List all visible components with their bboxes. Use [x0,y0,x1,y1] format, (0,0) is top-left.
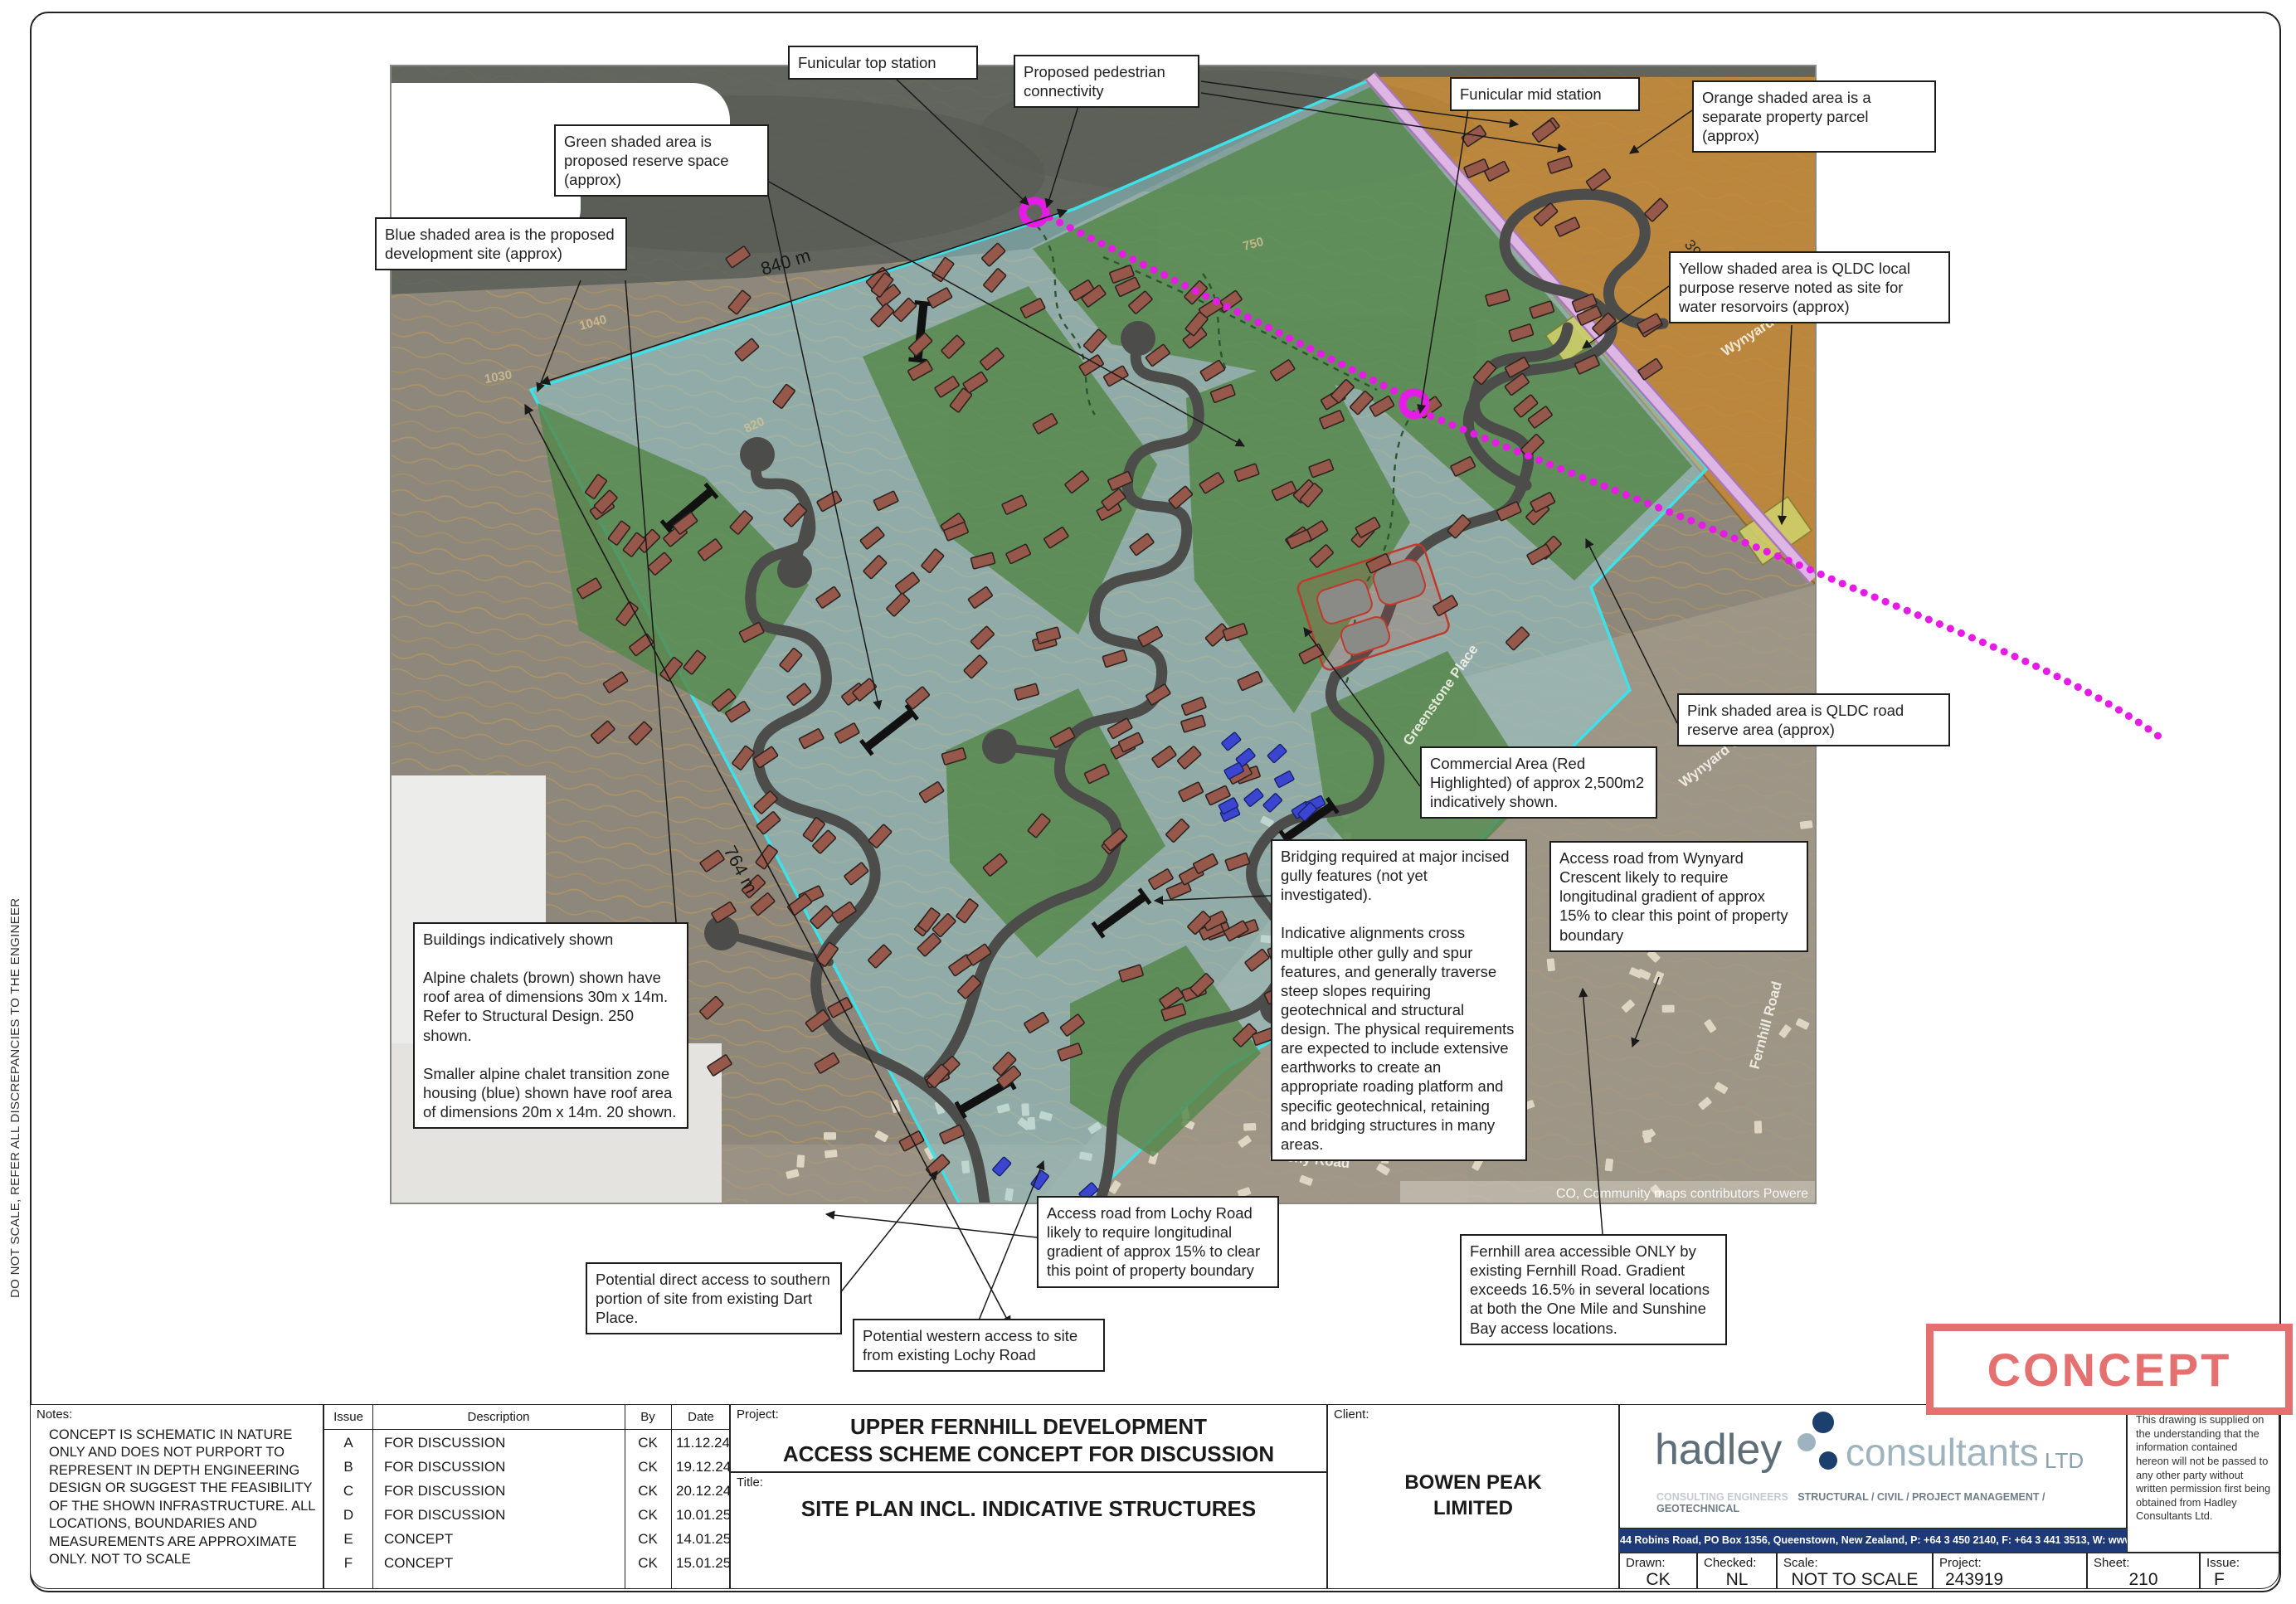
logo-ltd: LTD [2045,1448,2084,1474]
logo-dot-navy-1 [1812,1412,1834,1433]
notes-text: CONCEPT IS SCHEMATIC IN NATURE ONLY AND … [49,1427,316,1569]
col-issue: Issue [324,1410,372,1424]
client-label: Client: [1334,1407,1369,1422]
consultant-logo-panel: hadley consultants LTD CONSULTING ENGINE… [1619,1404,2127,1529]
logo-hadley: hadley [1655,1425,1782,1475]
drawn-cell: Drawn: CK [1619,1553,1697,1589]
consultant-address-bar: 44 Robins Road, PO Box 1356, Queenstown,… [1619,1529,2127,1553]
col-by: By [625,1410,671,1424]
client-panel: Client: BOWEN PEAK LIMITED [1327,1404,1619,1589]
consultant-address: 44 Robins Road, PO Box 1356, Queenstown,… [1620,1534,2126,1546]
callout-pedestrian: Proposed pedestrian connectivity [1014,55,1199,108]
callout-funicular-top: Funicular top station [788,46,978,80]
callout-pink-area: Pink shaded area is QLDC road reserve ar… [1677,693,1950,746]
project-panel: Project: UPPER FERNHILL DEVELOPMENT ACCE… [730,1404,1327,1472]
project-name-line2: ACCESS SCHEME CONCEPT FOR DISCUSSION [731,1441,1326,1468]
callout-funicular-mid: Funicular mid station [1450,77,1640,111]
checked-value: NL [1698,1570,1776,1590]
logo-tagline-1: CONSULTING ENGINEERS [1656,1491,1788,1503]
callout-green-area: Green shaded area is proposed reserve sp… [554,124,769,197]
concept-stamp: CONCEPT [1926,1324,2293,1415]
callout-commercial: Commercial Area (Red Highlighted) of app… [1420,746,1657,819]
issue-cell: Issue: F [2200,1553,2279,1589]
project-name-line1: UPPER FERNHILL DEVELOPMENT [731,1413,1326,1441]
callout-wynyard-access: Access road from Wynyard Crescent likely… [1549,841,1808,952]
title-panel: Title: SITE PLAN INCL. INDICATIVE STRUCT… [730,1472,1327,1589]
col-date: Date [671,1410,731,1424]
callout-fernhill: Fernhill area accessible ONLY by existin… [1460,1234,1727,1345]
drawing-title: SITE PLAN INCL. INDICATIVE STRUCTURES [731,1496,1326,1522]
callout-western-access: Potential western access to site from ex… [853,1319,1105,1372]
title-label: Title: [737,1475,763,1490]
drawn-value: CK [1620,1570,1696,1590]
project-number-cell: Project: 243919 [1933,1553,2087,1589]
sheet-cell: Sheet: 210 [2087,1553,2200,1589]
scale-cell: Scale: NOT TO SCALE [1777,1553,1933,1589]
revision-header-row: Issue Description By Date [324,1405,729,1430]
col-description: Description [372,1410,625,1424]
disclaimer-text: This drawing is supplied on the understa… [2136,1413,2272,1524]
revision-table: Issue Description By Date AFOR DISCUSSIO… [323,1404,730,1589]
client-name-line2: LIMITED [1328,1495,1618,1521]
notes-label: Notes: [36,1407,72,1422]
issue-value: F [2201,1570,2279,1590]
logo-dot-navy-2 [1819,1451,1837,1470]
callout-blue-area: Blue shaded area is the proposed develop… [375,217,627,270]
scale-value: NOT TO SCALE [1778,1570,1932,1590]
checked-cell: Checked: NL [1697,1553,1777,1589]
callout-bridging: Bridging required at major incised gully… [1271,839,1527,1161]
callout-orange-area: Orange shaded area is a separate propert… [1692,80,1936,153]
disclaimer-panel: This drawing is supplied on the understa… [2127,1404,2279,1553]
logo-dot-light [1797,1433,1816,1451]
callout-lochy-access: Access road from Lochy Road likely to re… [1037,1196,1279,1288]
project-number-value: 243919 [1934,1570,2086,1590]
drawing-sheet: DO NOT SCALE, REFER ALL DISCREPANCIES TO… [0,0,2296,1604]
callout-yellow-area: Yellow shaded area is QLDC local purpose… [1669,251,1950,323]
logo-consultants: consultants [1846,1430,2039,1475]
sheet-value: 210 [2088,1570,2199,1590]
map-attribution: CO, Community maps contributors Powere [1556,1187,1808,1201]
callout-buildings: Buildings indicatively shown Alpine chal… [413,922,688,1129]
callout-dart-access: Potential direct access to southern port… [586,1262,842,1334]
notes-panel: Notes: CONCEPT IS SCHEMATIC IN NATURE ON… [30,1404,323,1589]
client-name-line1: BOWEN PEAK [1328,1470,1618,1495]
